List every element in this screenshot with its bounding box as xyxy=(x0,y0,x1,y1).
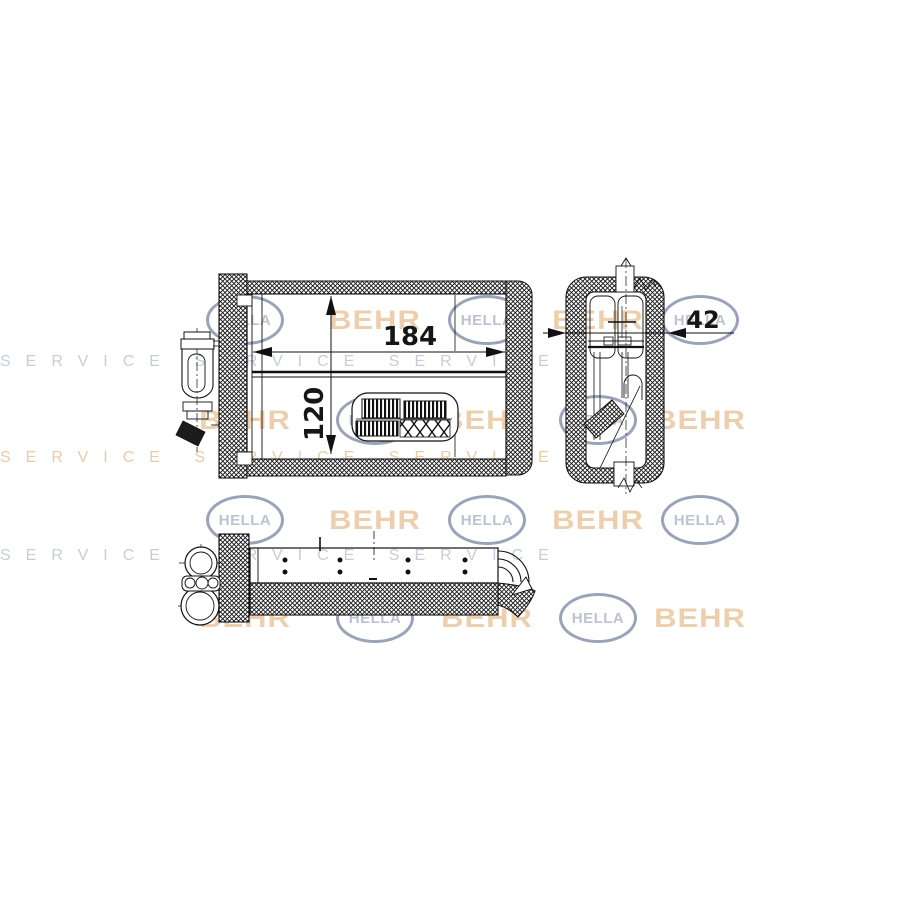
side-view: 42 xyxy=(543,258,734,494)
right-tank-hatch xyxy=(506,281,532,475)
bottom-hatch-band xyxy=(250,583,498,615)
bottom-left-hatch-block xyxy=(219,534,249,622)
width-dimension: 184 xyxy=(253,322,505,357)
heater-core-technical-drawing: 184 120 xyxy=(0,0,900,900)
side-internals xyxy=(584,258,644,494)
bottom-clip-dots xyxy=(283,558,468,575)
bottom-outlet-elbow xyxy=(498,548,535,617)
bottom-view xyxy=(178,531,535,627)
core-top-band xyxy=(247,281,506,294)
inlet-fitting xyxy=(176,328,220,452)
depth-dimension-label: 42 xyxy=(686,306,719,334)
part-label-barcode xyxy=(352,393,458,441)
bottom-pipe-ports xyxy=(178,544,224,627)
width-dimension-label: 184 xyxy=(383,322,437,352)
product-image-canvas: HELLABEHRHELLABEHRHELLABEHRHELLABEHRHELL… xyxy=(0,0,900,900)
bottom-tick-marks xyxy=(320,531,374,560)
front-view: 184 120 xyxy=(176,274,532,478)
core-bottom-band xyxy=(247,459,506,476)
height-dimension: 120 xyxy=(300,296,336,454)
height-dimension-label: 120 xyxy=(300,387,330,441)
